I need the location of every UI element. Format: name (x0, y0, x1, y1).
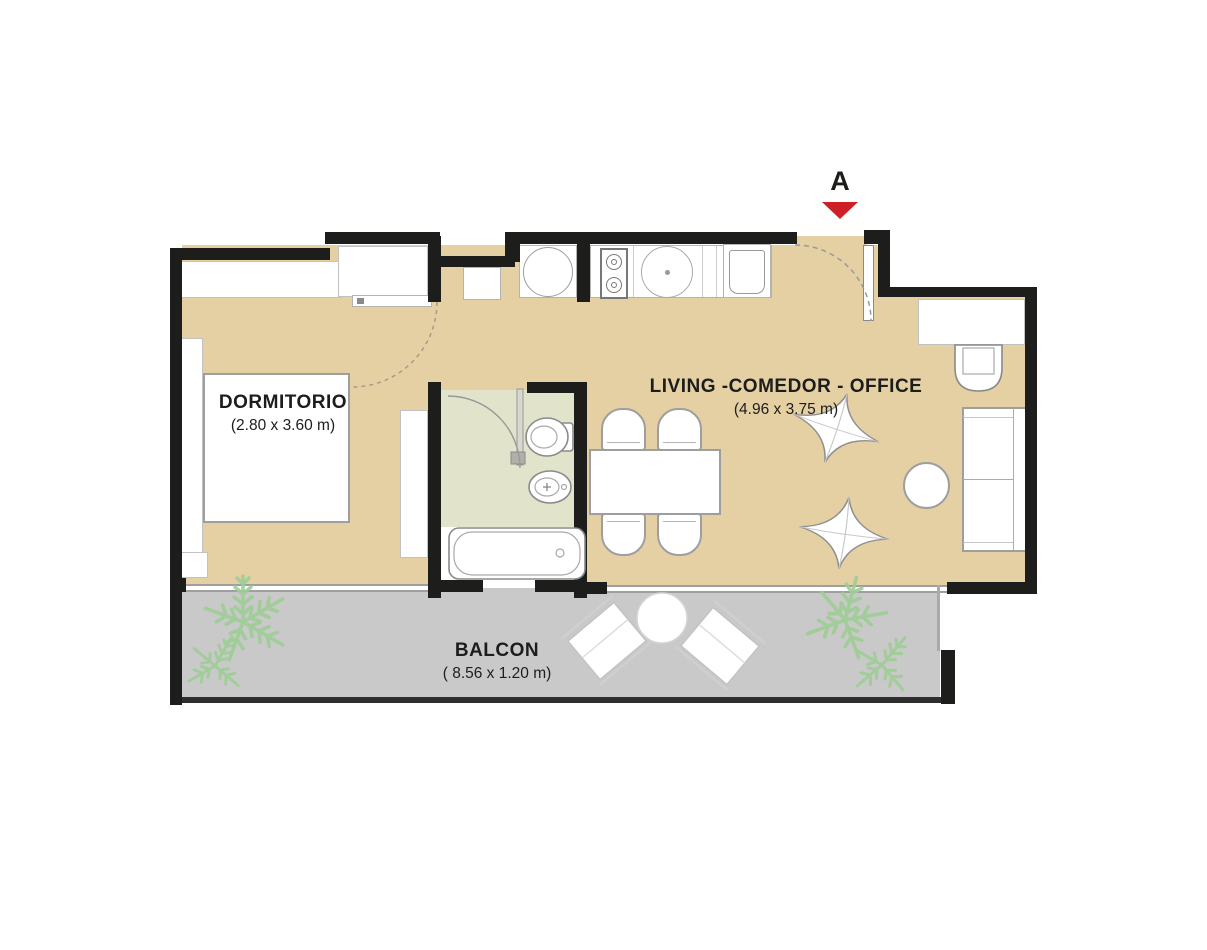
bathroom-door-swing-arc (448, 396, 520, 468)
bathtub (449, 528, 585, 579)
room-dims: ( 8.56 x 1.20 m) (443, 665, 552, 683)
room-dims: (2.80 x 3.60 m) (219, 417, 347, 435)
room-name: DORMITORIO (219, 392, 347, 414)
toilet (526, 418, 573, 456)
bidet (529, 471, 571, 503)
section-arrow-icon (822, 202, 858, 219)
armchair (794, 491, 893, 575)
balcony-table (637, 593, 687, 643)
dormitorio-label: DORMITORIO (2.80 x 3.60 m) (219, 392, 347, 435)
lounge-chair (675, 600, 766, 690)
balcon-label: BALCON ( 8.56 x 1.20 m) (443, 640, 552, 683)
floor-plan: A DORMITORIO (2.80 x 3.60 m) LIVING -COM… (0, 0, 1207, 950)
section-marker-label: A (820, 166, 860, 197)
desk-chair (955, 345, 1002, 391)
plant (185, 576, 287, 691)
entry-door-swing-arc (795, 245, 871, 321)
room-dims: (4.96 x 3.75 m) (650, 401, 923, 419)
overlay-drawing (0, 0, 1207, 950)
room-name: LIVING -COMEDOR - OFFICE (650, 376, 923, 398)
plant (804, 575, 910, 694)
bedroom-door-swing-arc (352, 302, 437, 387)
living-label: LIVING -COMEDOR - OFFICE (4.96 x 3.75 m) (650, 376, 923, 419)
room-name: BALCON (443, 640, 552, 662)
